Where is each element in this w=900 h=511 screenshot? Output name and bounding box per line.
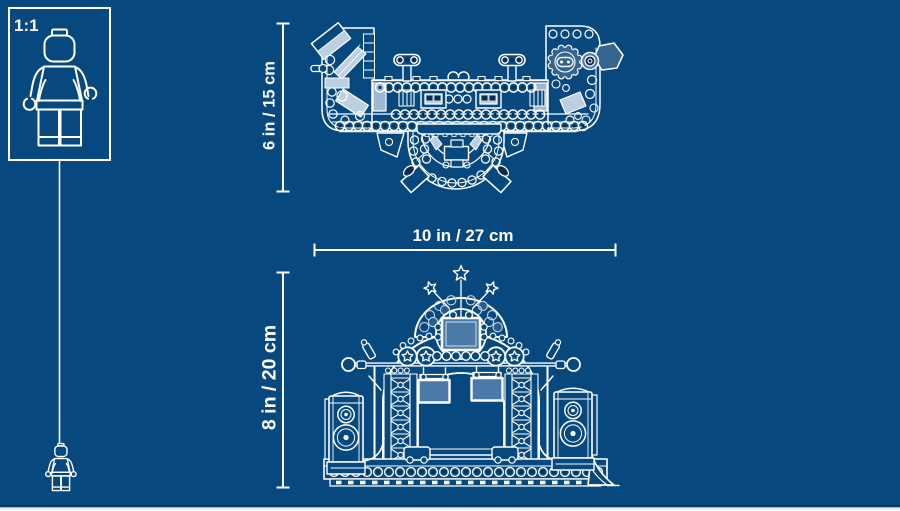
svg-text:1:1: 1:1	[14, 16, 39, 35]
